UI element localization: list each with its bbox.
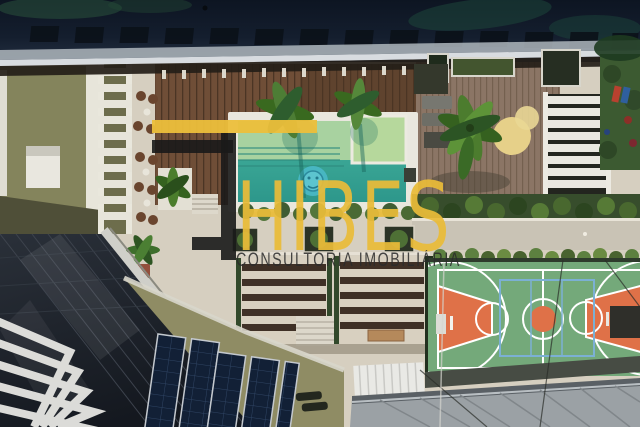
- watermark-logo-gold-bar: [152, 120, 317, 133]
- sun-lounger: [422, 96, 452, 109]
- deck-planter-palm: [153, 167, 194, 210]
- ladder-pergola: [98, 62, 132, 234]
- wooden-bench: [368, 330, 404, 341]
- lawn-playground: [594, 35, 640, 170]
- left-building-roof: [0, 62, 132, 234]
- louver-strip: [353, 362, 424, 396]
- watermark-tagline: CONSULTORIA IMOBILIÁRIA: [236, 251, 461, 271]
- aerial-photo: HIBES CONSULTORIA IMOBILIÁRIA: [0, 0, 640, 427]
- watermark-logo-stem: [221, 133, 236, 260]
- watermark-logo-stem-tick: [192, 237, 221, 250]
- deck-stairs: [192, 194, 218, 214]
- bird-silhouette: [203, 6, 208, 11]
- stairs: [296, 316, 334, 346]
